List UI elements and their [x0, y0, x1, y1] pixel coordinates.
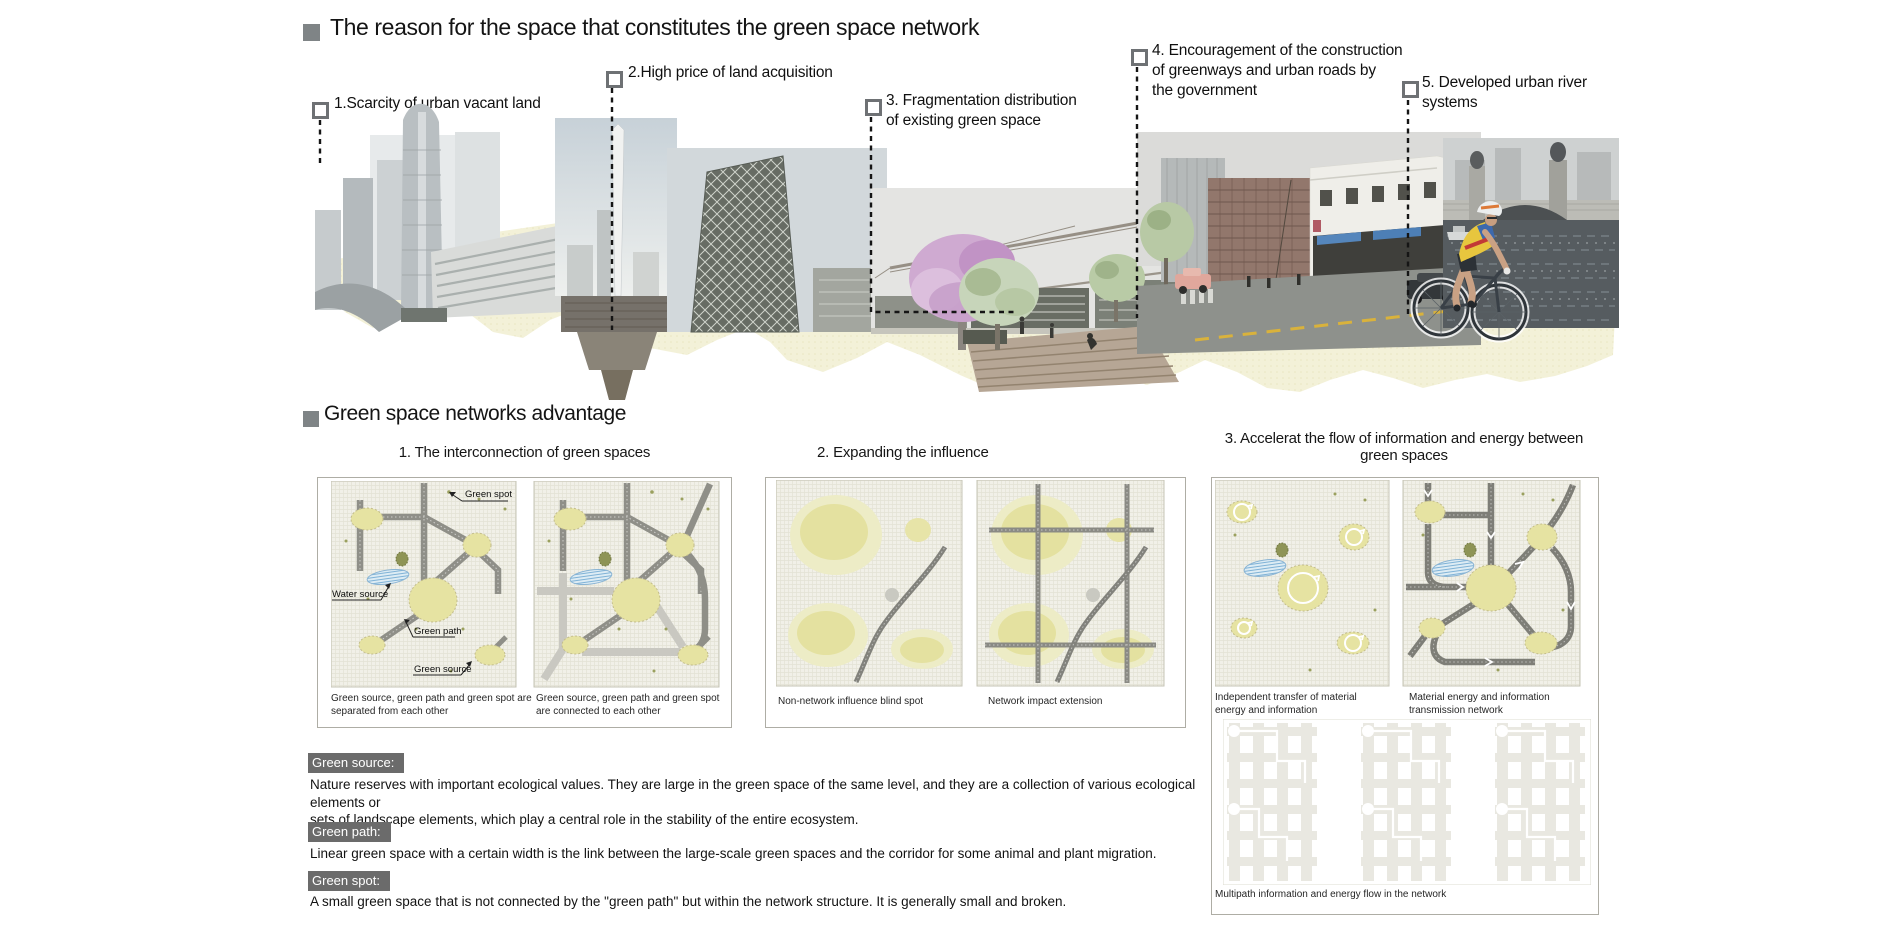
- diagram-separated: [331, 481, 516, 687]
- section1-title: The reason for the space that constitute…: [330, 14, 979, 41]
- definition-text-green-spot: A small green space that is not connecte…: [310, 893, 1240, 911]
- diagram-transmission-network: [1403, 480, 1580, 686]
- influence-diagrams: [776, 480, 1166, 690]
- panel2-heading: 2. Expanding the influence: [817, 444, 989, 461]
- panel3-heading: 3. Accelerat the flow of information and…: [1208, 430, 1600, 464]
- photo-street-scene: [1137, 132, 1481, 354]
- interconnection-diagrams: [331, 481, 721, 691]
- panel-flow-acceleration: Independent transfer of material energy …: [1211, 477, 1599, 915]
- panel-expanding-influence: Non-network influence blind spot Network…: [765, 477, 1186, 728]
- label-green-path: Green path: [414, 626, 462, 637]
- photo-diagrid-tower: [667, 148, 887, 332]
- caption-transmission-network: Material energy and information transmis…: [1409, 691, 1550, 717]
- caption-connected: Green source, green path and green spot …: [536, 692, 719, 718]
- section1-bullet-icon: [303, 24, 320, 41]
- label-green-spot: Green spot: [465, 489, 512, 500]
- poster-board: The reason for the space that constitute…: [0, 0, 1900, 927]
- diagram-connected: [534, 481, 719, 687]
- section2-bullet-icon: [303, 411, 319, 427]
- caption-multipath-flow: Multipath information and energy flow in…: [1215, 888, 1446, 901]
- urban-photo-montage: [315, 40, 1620, 430]
- caption-separated: Green source, green path and green spot …: [331, 692, 532, 718]
- caption-independent-transfer: Independent transfer of material energy …: [1215, 691, 1357, 717]
- photo-skyscrapers: [315, 104, 563, 332]
- flow-diagrams: [1215, 480, 1595, 688]
- multipath-grid-diagram: [1223, 719, 1591, 885]
- definition-text-green-path: Linear green space with a certain width …: [310, 845, 1240, 863]
- section2-title: Green space networks advantage: [324, 402, 626, 426]
- label-green-source: Green source: [414, 664, 472, 675]
- caption-blind-spot: Non-network influence blind spot: [778, 695, 923, 708]
- panel1-heading: 1. The interconnection of green spaces: [317, 444, 732, 461]
- panel-interconnection: Green spot Water source Green path Green…: [317, 477, 732, 728]
- definition-term-green-path: Green path:: [308, 822, 391, 842]
- photo-spire-tower: [555, 118, 677, 400]
- diagram-network-extension: [977, 480, 1164, 686]
- caption-network-extension: Network impact extension: [988, 695, 1103, 708]
- definition-term-green-source: Green source:: [308, 753, 404, 773]
- diagram-blind-spot: [776, 480, 962, 686]
- label-water-source: Water source: [332, 589, 388, 600]
- diagram-independent-transfer: [1215, 480, 1389, 686]
- definition-term-green-spot: Green spot:: [308, 871, 390, 891]
- definition-text-green-source: Nature reserves with important ecologica…: [310, 776, 1240, 829]
